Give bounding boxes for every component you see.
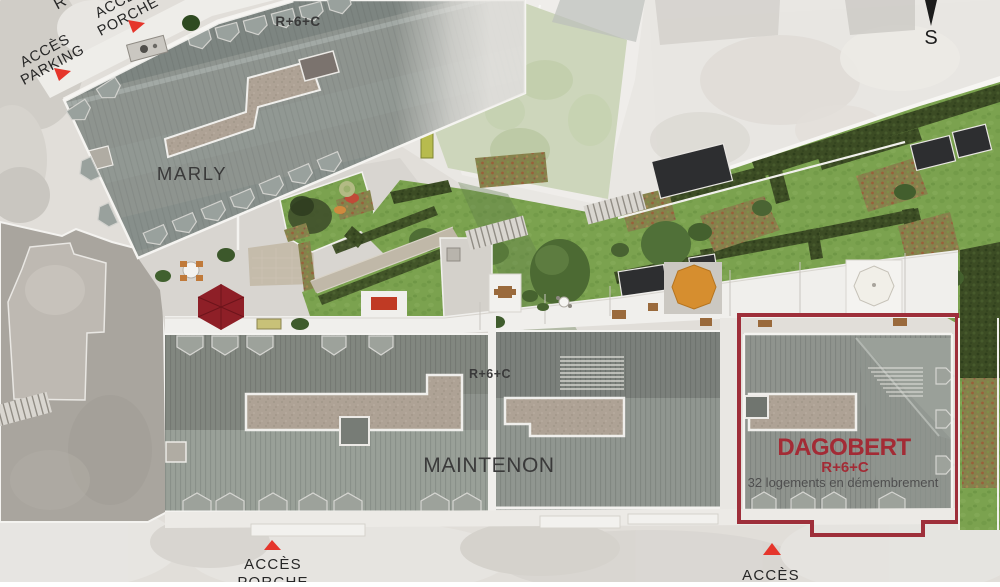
svg-text:MAINTENON: MAINTENON	[423, 454, 554, 477]
svg-text:ACCÈS: ACCÈS	[244, 556, 302, 573]
svg-text:R+6+C: R+6+C	[469, 367, 511, 381]
svg-text:PORCHE: PORCHE	[237, 574, 308, 582]
svg-text:32 logements en démembrement: 32 logements en démembrement	[748, 475, 939, 490]
svg-text:MARLY: MARLY	[157, 163, 227, 184]
svg-text:ACCÈS: ACCÈS	[742, 567, 800, 582]
svg-text:R+6+C: R+6+C	[275, 14, 320, 29]
svg-text:S: S	[924, 27, 937, 49]
svg-text:DAGOBERT: DAGOBERT	[777, 434, 911, 461]
svg-text:R+6+C: R+6+C	[821, 459, 869, 476]
